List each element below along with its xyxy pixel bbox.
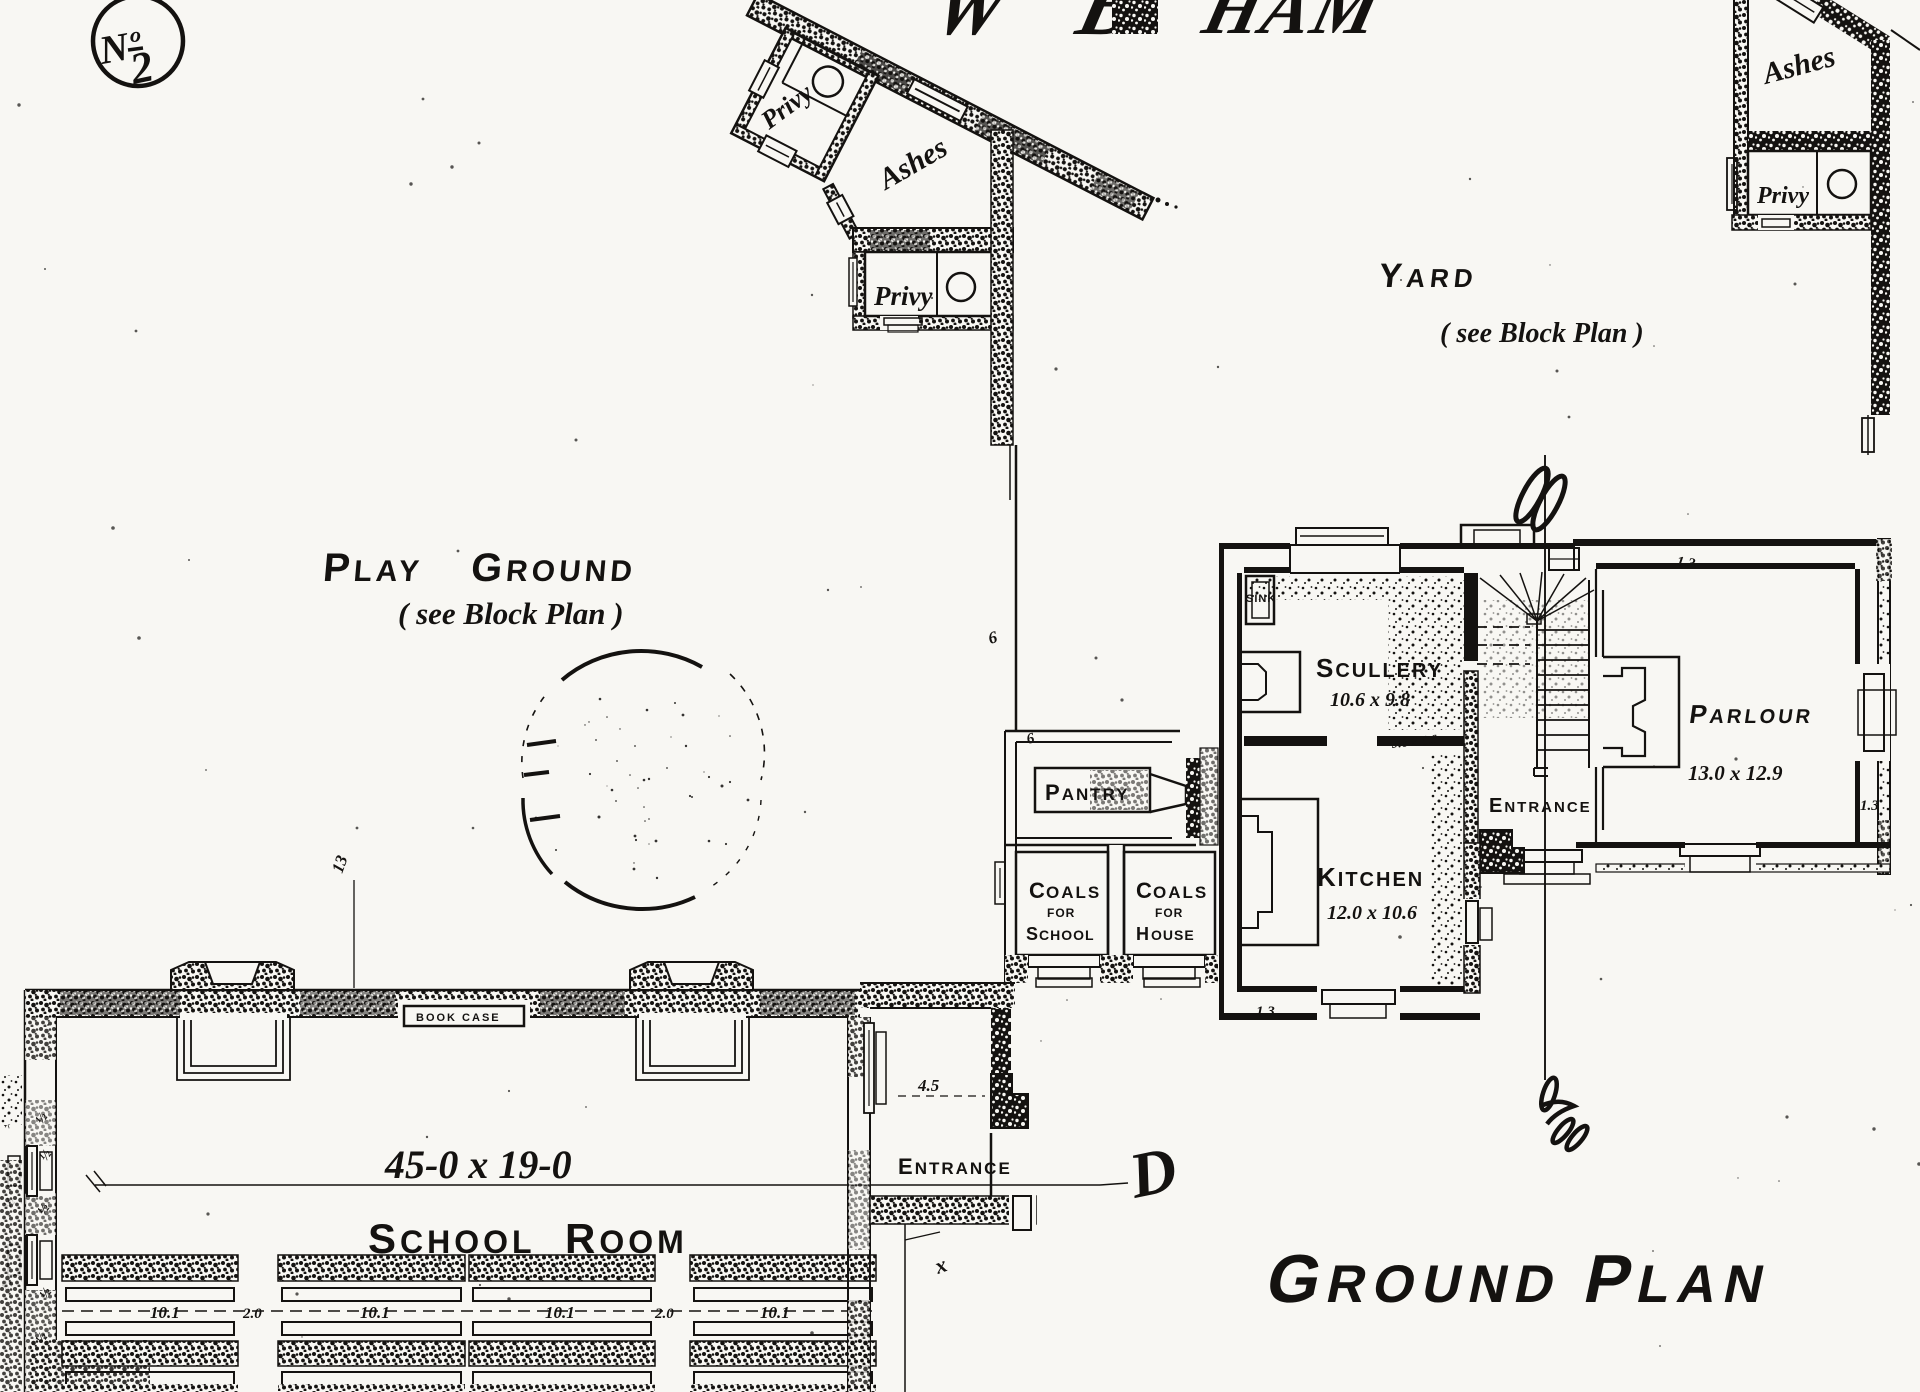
svg-text:10.1: 10.1: [545, 1303, 575, 1322]
svg-text:Privy: Privy: [1756, 183, 1809, 209]
svg-text:1.3: 1.3: [1256, 1004, 1275, 1020]
svg-text:C: C: [1029, 878, 1047, 903]
svg-text:HAM: HAM: [1195, 0, 1391, 49]
svg-text:BOOK CASE: BOOK CASE: [416, 1012, 501, 1024]
svg-text:10.1: 10.1: [360, 1303, 390, 1322]
svg-text:10.1: 10.1: [760, 1303, 790, 1322]
svg-text:ENTRANCE: ENTRANCE: [1489, 795, 1592, 817]
svg-text:C: C: [1136, 878, 1154, 903]
svg-text:10.1: 10.1: [150, 1303, 180, 1322]
svg-text:S: S: [1026, 924, 1039, 944]
svg-text:SINK: SINK: [1246, 593, 1276, 605]
svg-text:FOR: FOR: [1047, 906, 1075, 920]
svg-text:Privy: Privy: [873, 281, 933, 311]
svg-text:2.0: 2.0: [654, 1306, 674, 1322]
svg-text:FOR: FOR: [1155, 906, 1183, 920]
svg-text:1.3: 1.3: [1675, 554, 1696, 573]
svg-text:1.3: 1.3: [1860, 798, 1879, 814]
svg-text:2.0: 2.0: [242, 1306, 262, 1322]
svg-text:12.0 x 10.6: 12.0 x 10.6: [1327, 902, 1417, 924]
svg-text:( see Block Plan ): ( see Block Plan ): [398, 596, 624, 631]
svg-text:13.0 x 12.9: 13.0 x 12.9: [1688, 761, 1783, 785]
svg-text:OUSE: OUSE: [1151, 927, 1195, 943]
svg-text:10.6 x 9.8: 10.6 x 9.8: [1330, 689, 1410, 711]
svg-text:45-0 x 19-0: 45-0 x 19-0: [384, 1142, 572, 1187]
svg-text:YARD: YARD: [1377, 257, 1480, 295]
svg-text:4.5: 4.5: [917, 1076, 940, 1095]
svg-text:H: H: [1136, 924, 1150, 944]
svg-text:CHOOL: CHOOL: [1039, 927, 1095, 943]
svg-text:OALS: OALS: [1046, 883, 1101, 902]
svg-text:( see Block Plan ): ( see Block Plan ): [1440, 318, 1644, 349]
svg-text:OALS: OALS: [1153, 883, 1208, 902]
